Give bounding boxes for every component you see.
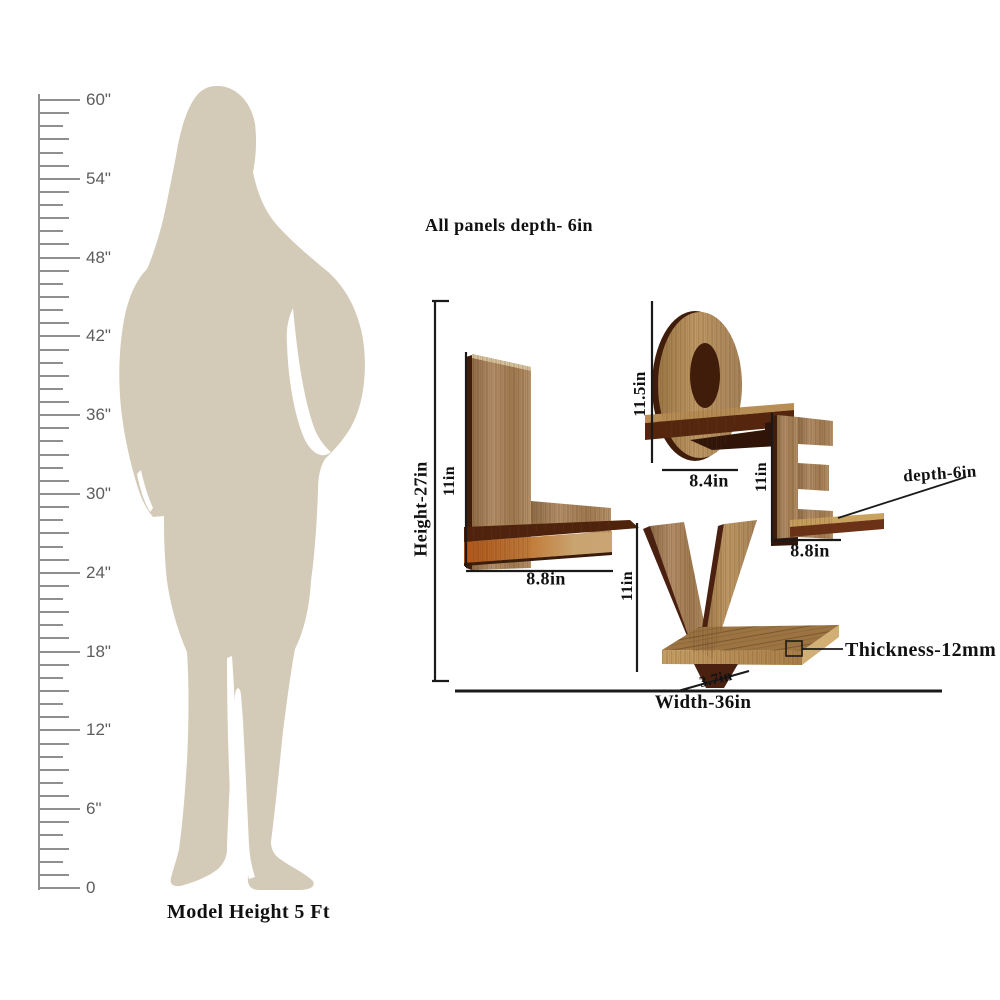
love-shelf-diagram — [0, 0, 1000, 1000]
e-height-dim-label: 11in — [753, 462, 771, 492]
o-height-dim-label: 11.5in — [630, 371, 650, 416]
product-dimension-image: 60"54"48"42"36"30"24"18"12"6"0 — [0, 0, 1000, 1000]
height-dim-label: Height-27in — [411, 461, 432, 556]
e-width-dim-label: 8.8in — [790, 541, 830, 562]
model-height-caption: Model Height 5 Ft — [167, 901, 330, 924]
thickness-dim-label: Thickness-12mm — [845, 639, 996, 662]
v-height-dim-label: 11in — [619, 571, 637, 601]
width-dim-label: Width-36in — [655, 692, 752, 714]
l-height-dim-label: 11in — [441, 466, 459, 496]
panels-depth-note: All panels depth- 6in — [425, 215, 593, 236]
l-width-dim-label: 8.8in — [526, 569, 566, 590]
o-width-dim-label: 8.4in — [689, 471, 729, 492]
